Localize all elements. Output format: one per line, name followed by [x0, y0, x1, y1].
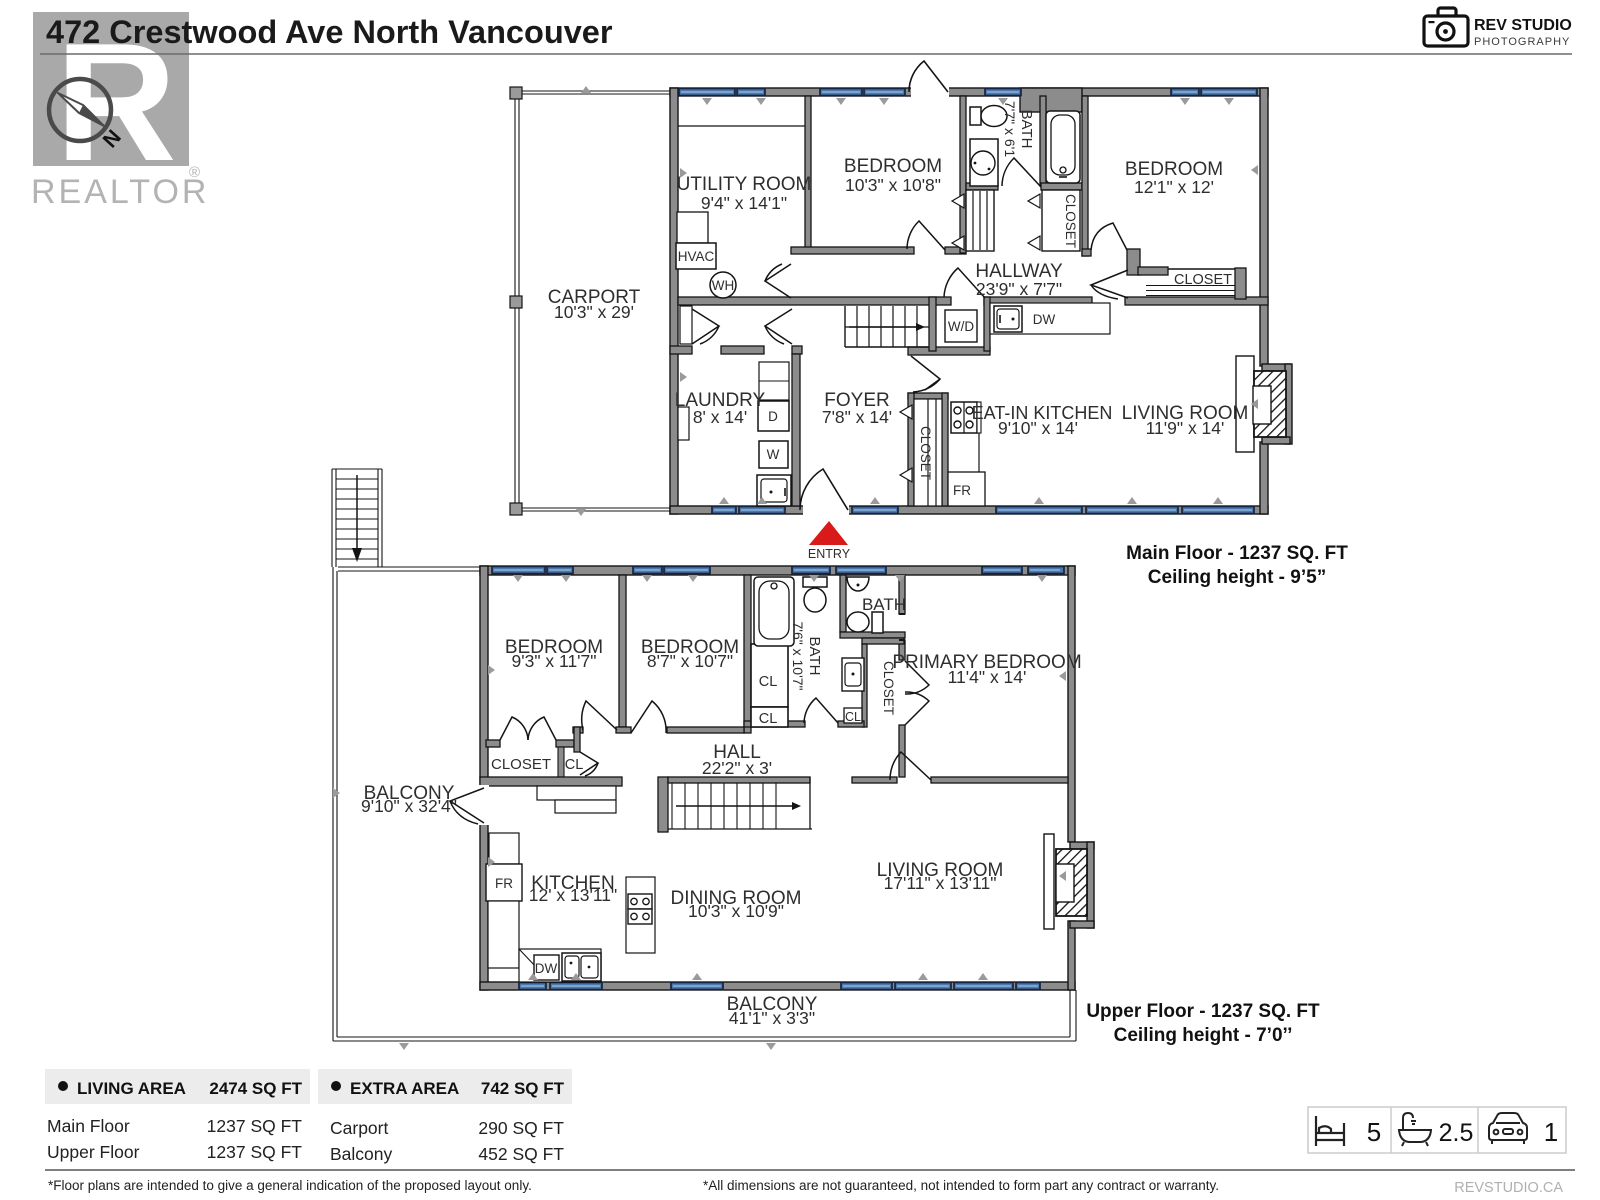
svg-text:1: 1	[1544, 1117, 1558, 1147]
svg-text:UTILITY ROOM: UTILITY ROOM	[677, 174, 812, 195]
svg-text:*Floor plans are intended to g: *Floor plans are intended to give a gene…	[48, 1178, 532, 1193]
svg-text:CLOSET: CLOSET	[1174, 272, 1232, 288]
svg-text:CLOSET: CLOSET	[918, 426, 933, 480]
svg-text:10'3" x 10'9": 10'3" x 10'9"	[688, 901, 784, 921]
svg-text:CLOSET: CLOSET	[1063, 194, 1078, 248]
svg-text:REV STUDIO: REV STUDIO	[1474, 17, 1572, 34]
svg-text:Main Floor - 1237 SQ. FT: Main Floor - 1237 SQ. FT	[1126, 543, 1348, 564]
svg-text:CLOSET: CLOSET	[491, 756, 551, 773]
svg-text:2474 SQ FT: 2474 SQ FT	[209, 1079, 302, 1098]
svg-text:REVSTUDIO.CA: REVSTUDIO.CA	[1454, 1180, 1563, 1196]
svg-text:22'2" x 3': 22'2" x 3'	[702, 758, 772, 778]
svg-text:DW: DW	[1033, 312, 1056, 327]
svg-text:BATH: BATH	[1018, 110, 1035, 149]
svg-text:742 SQ FT: 742 SQ FT	[481, 1079, 565, 1098]
svg-text:9'4" x 14'1": 9'4" x 14'1"	[701, 193, 787, 213]
svg-text:D: D	[768, 409, 778, 424]
svg-text:7'7" x 6'1: 7'7" x 6'1	[1002, 101, 1018, 157]
svg-text:*All dimensions are not guaran: *All dimensions are not guaranteed, not …	[703, 1178, 1219, 1193]
svg-text:CL: CL	[759, 711, 778, 727]
svg-text:Upper Floor - 1237 SQ. FT: Upper Floor - 1237 SQ. FT	[1086, 1001, 1320, 1022]
svg-text:HVAC: HVAC	[678, 249, 715, 264]
svg-text:BATH: BATH	[806, 637, 823, 676]
svg-text:12' x 13'11": 12' x 13'11"	[529, 885, 617, 905]
svg-text:8'7" x 10'7": 8'7" x 10'7"	[647, 651, 733, 671]
svg-text:CL: CL	[845, 710, 861, 724]
svg-text:FR: FR	[495, 876, 513, 891]
svg-text:41'1" x 3'3": 41'1" x 3'3"	[729, 1008, 815, 1028]
svg-text:BEDROOM: BEDROOM	[844, 156, 942, 177]
svg-text:5: 5	[1367, 1117, 1381, 1147]
svg-text:452 SQ FT: 452 SQ FT	[478, 1144, 564, 1164]
svg-text:12'1" x 12': 12'1" x 12'	[1134, 177, 1214, 197]
svg-text:CL: CL	[759, 674, 778, 690]
svg-text:Balcony: Balcony	[330, 1144, 393, 1164]
svg-text:7'8" x 14': 7'8" x 14'	[822, 407, 892, 427]
svg-text:23'9" x 7'7": 23'9" x 7'7"	[976, 279, 1062, 299]
svg-text:ENTRY: ENTRY	[808, 547, 851, 561]
svg-text:BATH: BATH	[862, 595, 906, 614]
svg-text:EXTRA AREA: EXTRA AREA	[350, 1079, 459, 1098]
svg-text:11'4" x 14': 11'4" x 14'	[948, 667, 1027, 687]
svg-text:1237 SQ FT: 1237 SQ FT	[207, 1142, 303, 1162]
svg-text:CLOSET: CLOSET	[881, 661, 896, 715]
svg-text:7'6" x 10'7": 7'6" x 10'7"	[790, 622, 806, 691]
svg-text:10'3" x 10'8": 10'3" x 10'8"	[845, 175, 941, 195]
svg-text:REALTOR: REALTOR	[31, 173, 209, 211]
svg-text:9'3" x 11'7": 9'3" x 11'7"	[512, 651, 597, 671]
svg-text:W/D: W/D	[948, 319, 974, 334]
svg-text:Main Floor: Main Floor	[47, 1116, 130, 1136]
svg-text:Carport: Carport	[330, 1118, 388, 1138]
svg-text:10'3" x 29': 10'3" x 29'	[554, 302, 634, 322]
svg-text:472 Crestwood Ave North Vancou: 472 Crestwood Ave North Vancouver	[46, 14, 613, 50]
svg-text:DW: DW	[535, 961, 558, 976]
svg-text:CL: CL	[565, 757, 584, 773]
svg-text:11'9" x 14': 11'9" x 14'	[1146, 418, 1225, 438]
svg-text:17'11" x 13'11": 17'11" x 13'11"	[884, 873, 997, 893]
svg-text:PHOTOGRAPHY: PHOTOGRAPHY	[1474, 36, 1570, 48]
svg-text:290 SQ FT: 290 SQ FT	[478, 1118, 564, 1138]
svg-text:®: ®	[189, 164, 200, 181]
svg-text:LIVING AREA: LIVING AREA	[77, 1079, 186, 1098]
svg-text:Ceiling height - 7’0’’: Ceiling height - 7’0’’	[1114, 1025, 1293, 1046]
svg-text:9'10" x 14': 9'10" x 14'	[998, 418, 1078, 438]
svg-text:2.5: 2.5	[1439, 1119, 1474, 1147]
svg-text:8' x 14': 8' x 14'	[693, 407, 747, 427]
svg-text:Upper Floor: Upper Floor	[47, 1142, 140, 1162]
svg-text:9'10" x 32'4": 9'10" x 32'4"	[361, 796, 457, 816]
svg-text:WH: WH	[712, 278, 735, 293]
svg-text:W: W	[767, 447, 780, 462]
svg-text:Ceiling height - 9’5”: Ceiling height - 9’5”	[1148, 567, 1326, 588]
svg-text:1237 SQ FT: 1237 SQ FT	[207, 1116, 303, 1136]
svg-text:FR: FR	[953, 483, 971, 498]
